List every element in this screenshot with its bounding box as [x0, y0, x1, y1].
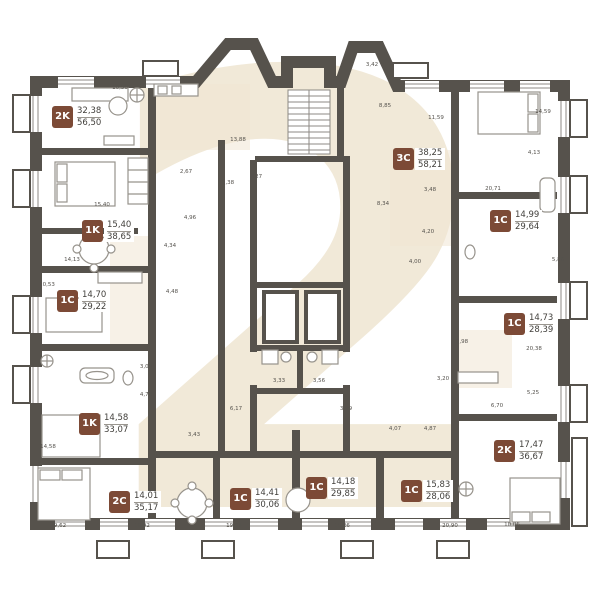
apartment-areas: 14,58 33,07 — [101, 413, 131, 435]
dimension-label: 15,26 — [334, 523, 350, 529]
total-area: 28,39 — [529, 325, 553, 335]
room-area: 14,73 — [529, 313, 553, 324]
room-area: 14,70 — [82, 290, 106, 301]
dimension-label: 14,58 — [40, 444, 56, 450]
dimension-label: 4,27 — [250, 174, 262, 180]
kitchen-counter — [154, 84, 198, 96]
dimension-label: 4,13 — [528, 150, 540, 156]
apartment-areas: 15,40 38,65 — [104, 220, 134, 242]
dimension-label: 14,59 — [535, 109, 551, 115]
room-area: 15,40 — [107, 220, 131, 231]
dimension-label: 13,88 — [230, 137, 246, 143]
apartment-type-badge: 2K — [52, 106, 73, 128]
dimension-label: 20,71 — [485, 186, 501, 192]
dimension-label: 14,13 — [64, 257, 80, 263]
dimension-label: 10,06 — [504, 522, 520, 528]
elevator-shafts — [264, 292, 339, 342]
apartment-type-badge: 1C — [490, 210, 511, 232]
dimension-label: 20,38 — [526, 346, 542, 352]
bathtub — [80, 368, 114, 383]
total-area: 30,06 — [255, 500, 279, 510]
apartment-type-badge: 1K — [79, 413, 100, 435]
apartment-label-2k-5650[interactable]: 2K 32,38 56,50 — [52, 106, 104, 128]
total-area: 29,85 — [331, 489, 355, 499]
apartment-areas: 15,83 28,06 — [423, 480, 453, 502]
apartment-type-badge: 1C — [230, 488, 251, 510]
dimension-label: 5,86 — [552, 257, 564, 263]
apartment-type-badge: 1C — [306, 477, 327, 499]
room-area: 17,47 — [519, 440, 543, 451]
apartment-type-badge: 2C — [109, 491, 130, 513]
apartment-type-badge: 1C — [401, 480, 422, 502]
dimension-label: 4,48 — [166, 289, 178, 295]
desk — [104, 136, 134, 145]
apartment-label-1c-2964[interactable]: 1C 14,99 29,64 — [490, 210, 542, 232]
dimension-label: 9,62 — [54, 523, 66, 529]
room-area: 14,18 — [331, 477, 355, 488]
dimension-label: 3,48 — [424, 187, 436, 193]
dimension-label: 2,98 — [456, 339, 468, 345]
apartment-areas: 38,25 58,21 — [415, 148, 445, 170]
dimension-label: 3,09 — [140, 364, 152, 370]
room-area: 15,83 — [426, 480, 450, 491]
dimension-label: 11,59 — [428, 115, 444, 121]
dimension-label: 20,53 — [39, 282, 55, 288]
kitchen-counter — [98, 272, 142, 283]
dimension-label: 10,50 — [112, 85, 128, 91]
apartment-type-badge: 3C — [393, 148, 414, 170]
apartment-areas: 14,73 28,39 — [526, 313, 556, 335]
apartment-areas: 14,41 30,06 — [252, 488, 282, 510]
bed — [38, 468, 90, 520]
apartment-type-badge: 1C — [57, 290, 78, 312]
dimension-label: 4,87 — [424, 426, 436, 432]
dimension-label: 4,00 — [409, 259, 421, 265]
toilet-icon — [123, 371, 133, 385]
dimension-label: 15,40 — [94, 202, 110, 208]
dimension-label: 2,67 — [180, 169, 192, 175]
apartment-areas: 17,47 36,67 — [516, 440, 546, 462]
dimension-label: 3,42 — [366, 62, 378, 68]
staircase — [288, 90, 330, 154]
dimension-label: 8,34 — [377, 201, 389, 207]
dimension-label: 3,99 — [340, 406, 352, 412]
dimension-label: 6,17 — [230, 406, 242, 412]
apartment-areas: 14,01 35,17 — [131, 491, 161, 513]
apartment-areas: 14,18 29,85 — [328, 477, 358, 499]
apartment-areas: 14,99 29,64 — [512, 210, 542, 232]
apartment-type-badge: 1K — [82, 220, 103, 242]
dimension-label: 19,96 — [226, 523, 242, 529]
room-area: 32,38 — [77, 106, 101, 117]
apartment-label-1k-3865[interactable]: 1K 15,40 38,65 — [82, 220, 134, 242]
dimension-label: 4,07 — [389, 426, 401, 432]
apartment-label-1c-2985[interactable]: 1C 14,18 29,85 — [306, 477, 358, 499]
dimension-label: 3,20 — [437, 376, 449, 382]
toilet-icon — [465, 245, 475, 259]
washer-icon — [307, 350, 338, 364]
apartment-label-1c-3006[interactable]: 1C 14,41 30,06 — [230, 488, 282, 510]
apartment-type-badge: 2K — [494, 440, 515, 462]
dimension-label: 5,25 — [527, 390, 539, 396]
total-area: 33,07 — [104, 425, 128, 435]
room-area: 38,25 — [418, 148, 442, 159]
dimension-label: 6,70 — [491, 403, 503, 409]
room-area: 14,01 — [134, 491, 158, 502]
wardrobe — [128, 158, 148, 204]
dimension-label: 3,33 — [273, 378, 285, 384]
bed — [55, 162, 115, 206]
apartment-areas: 32,38 56,50 — [74, 106, 104, 128]
total-area: 29,64 — [515, 222, 539, 232]
dimension-label: 8,85 — [379, 103, 391, 109]
apartment-label-1c-2922[interactable]: 1C 14,70 29,22 — [57, 290, 109, 312]
kitchen-counter — [458, 372, 498, 383]
total-area: 29,22 — [82, 302, 106, 312]
fan-icon — [130, 88, 144, 102]
apartment-label-2k-3667[interactable]: 2K 17,47 36,67 — [494, 440, 546, 462]
dimension-label: 4,73 — [140, 392, 152, 398]
dining-table — [171, 482, 213, 524]
apartment-label-2c-3517[interactable]: 2C 14,01 35,17 — [109, 491, 161, 513]
dimension-label: 3,38 — [222, 180, 234, 186]
total-area: 28,06 — [426, 492, 450, 502]
fan-icon — [459, 482, 473, 496]
dimension-label: 20,90 — [442, 523, 458, 529]
total-area: 58,21 — [418, 160, 442, 170]
bed — [478, 92, 540, 134]
armchair-icon — [109, 97, 127, 115]
bathtub — [540, 178, 555, 212]
apartment-label-1k-3307[interactable]: 1K 14,58 33,07 — [79, 413, 131, 435]
floor-plan: 2 — [0, 0, 600, 600]
dimension-label: 3,56 — [313, 378, 325, 384]
apartment-label-3c-5821[interactable]: 3C 38,25 58,21 — [393, 148, 445, 170]
dimension-label: 4,20 — [422, 229, 434, 235]
total-area: 38,65 — [107, 232, 131, 242]
room-area: 14,99 — [515, 210, 539, 221]
total-area: 56,50 — [77, 118, 101, 128]
bed — [510, 478, 560, 524]
apartment-areas: 14,70 29,22 — [79, 290, 109, 312]
dimension-label: 19,92 — [134, 523, 150, 529]
fan-icon — [41, 355, 53, 367]
total-area: 35,17 — [134, 503, 158, 513]
washer-icon — [262, 350, 291, 364]
room-area: 14,58 — [104, 413, 128, 424]
apartment-type-badge: 1C — [504, 313, 525, 335]
dimension-label: 4,96 — [184, 215, 196, 221]
dimension-label: 4,34 — [164, 243, 176, 249]
apartment-label-1c-2839[interactable]: 1C 14,73 28,39 — [504, 313, 556, 335]
total-area: 36,67 — [519, 452, 543, 462]
apartment-label-1c-2806[interactable]: 1C 15,83 28,06 — [401, 480, 453, 502]
dimension-label: 3,43 — [188, 432, 200, 438]
room-area: 14,41 — [255, 488, 279, 499]
